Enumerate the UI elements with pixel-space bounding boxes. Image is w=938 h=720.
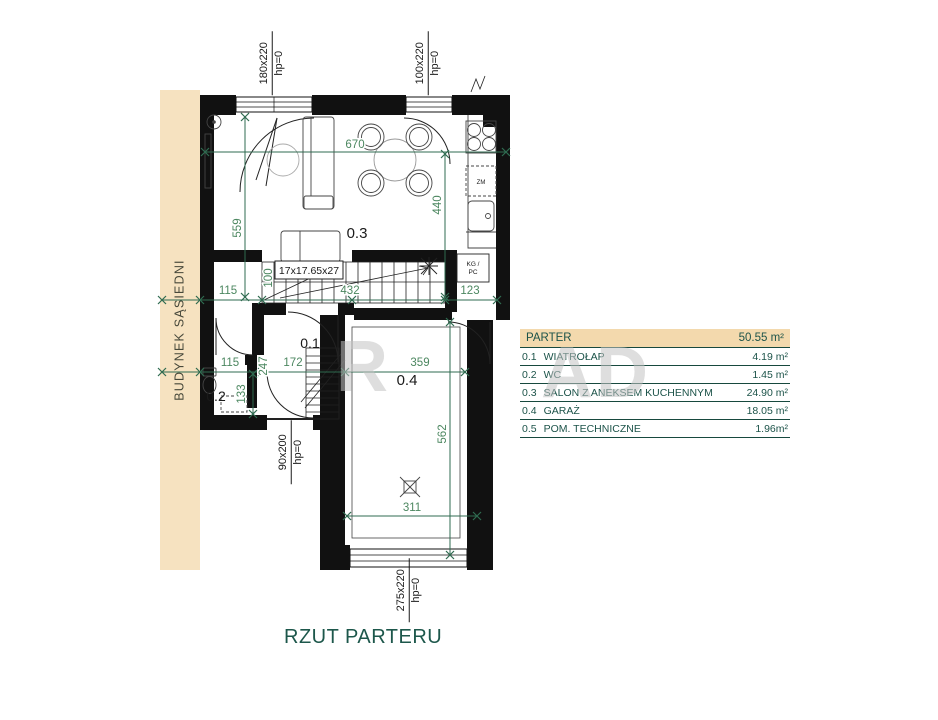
opening-hp: hp=0 — [410, 558, 424, 622]
dim-hall-width: 115 — [219, 285, 237, 297]
legend-row: 0.3 SALON Z ANEKSEM KUCHENNYM 24.90 m² — [520, 384, 790, 402]
legend-room-area: 24.90 m² — [747, 387, 788, 399]
legend-room-area: 1.45 m² — [752, 369, 788, 381]
dim-entry-width: 115 — [221, 357, 239, 369]
opening-size: 90x200 — [277, 420, 292, 484]
room-label-0-1: 0.1 — [300, 335, 320, 351]
opening-label-balcony-door: 100x220 hp=0 — [414, 31, 443, 95]
legend-room-name: GARAŻ — [544, 405, 747, 417]
opening-hp: hp=0 — [292, 420, 306, 484]
legend-room-area: 1.96m² — [755, 423, 788, 435]
legend-room-name: SALON Z ANEKSEM KUCHENNYM — [544, 387, 747, 399]
dim-garage-depth: 562 — [437, 424, 449, 443]
legend-floor-name: PARTER — [526, 332, 572, 344]
dim-living-height-left: 559 — [232, 218, 244, 237]
room-label-0-2: 0.2 — [206, 388, 226, 404]
dim-tech-width: 123 — [460, 285, 479, 297]
legend-room-name: WIATROŁAP — [544, 351, 753, 363]
dishwasher-label: ZM — [477, 180, 486, 186]
dim-stair-length: 432 — [340, 285, 359, 297]
legend-room-number: 0.3 — [522, 387, 537, 399]
opening-hp: hp=0 — [429, 31, 443, 95]
legend-floor-area: 50.55 m² — [739, 332, 784, 344]
dim-vestibule-width: 172 — [283, 357, 302, 369]
legend-row: 0.2 WC 1.45 m² — [520, 366, 790, 384]
opening-hp: hp=0 — [273, 31, 287, 95]
legend-header-row: PARTER 50.55 m² — [520, 329, 790, 348]
room-label-0-4: 0.4 — [397, 372, 418, 389]
dim-stair-depth: 100 — [263, 268, 275, 287]
legend-room-number: 0.5 — [522, 423, 537, 435]
dim-garage-width: 359 — [410, 357, 429, 369]
dim-garage-door-span: 311 — [403, 502, 421, 514]
boiler-label-line1: KG / — [466, 261, 479, 268]
dim-vestibule-depth: 247 — [258, 356, 270, 375]
legend-room-name: WC — [544, 369, 753, 381]
legend-room-number: 0.2 — [522, 369, 537, 381]
legend-room-number: 0.1 — [522, 351, 537, 363]
room-label-0-3: 0.3 — [347, 225, 368, 242]
opening-size: 180x220 — [258, 31, 273, 95]
boiler-label-line2: PC — [468, 269, 477, 276]
legend-room-number: 0.4 — [522, 405, 537, 417]
legend-room-area: 18.05 m² — [747, 405, 788, 417]
legend-row: 0.4 GARAŻ 18.05 m² — [520, 402, 790, 420]
opening-size: 100x220 — [414, 31, 429, 95]
windows-layer — [236, 97, 467, 567]
walls-layer — [200, 95, 510, 570]
page-title: RZUT PARTERU — [284, 626, 442, 649]
dim-living-width: 670 — [345, 139, 364, 151]
dim-living-height-right: 440 — [432, 195, 444, 214]
legend-row: 0.5 POM. TECHNICZNE 1.96m² — [520, 420, 790, 438]
opening-size: 275x220 — [395, 558, 410, 622]
legend-room-name: POM. TECHNICZNE — [544, 423, 756, 435]
floorplan-drawing: 670 559 440 115 100 432 123 115 247 172 … — [0, 0, 938, 720]
dim-wc-width: 133 — [236, 384, 248, 403]
legend-row: 0.1 WIATROŁAP 4.19 m² — [520, 348, 790, 366]
legend-room-area: 4.19 m² — [752, 351, 788, 363]
opening-label-entry-door: 90x200 hp=0 — [277, 420, 306, 484]
opening-label-terrace-door: 180x220 hp=0 — [258, 31, 287, 95]
floorplan-page: BUDYNEK SĄSIEDNI — [0, 0, 938, 720]
opening-label-garage-door: 275x220 hp=0 — [395, 558, 424, 622]
stairs-dimensions-label: 17x17.65x27 — [279, 265, 339, 277]
area-legend-table: PARTER 50.55 m² 0.1 WIATROŁAP 4.19 m² 0.… — [520, 329, 790, 438]
